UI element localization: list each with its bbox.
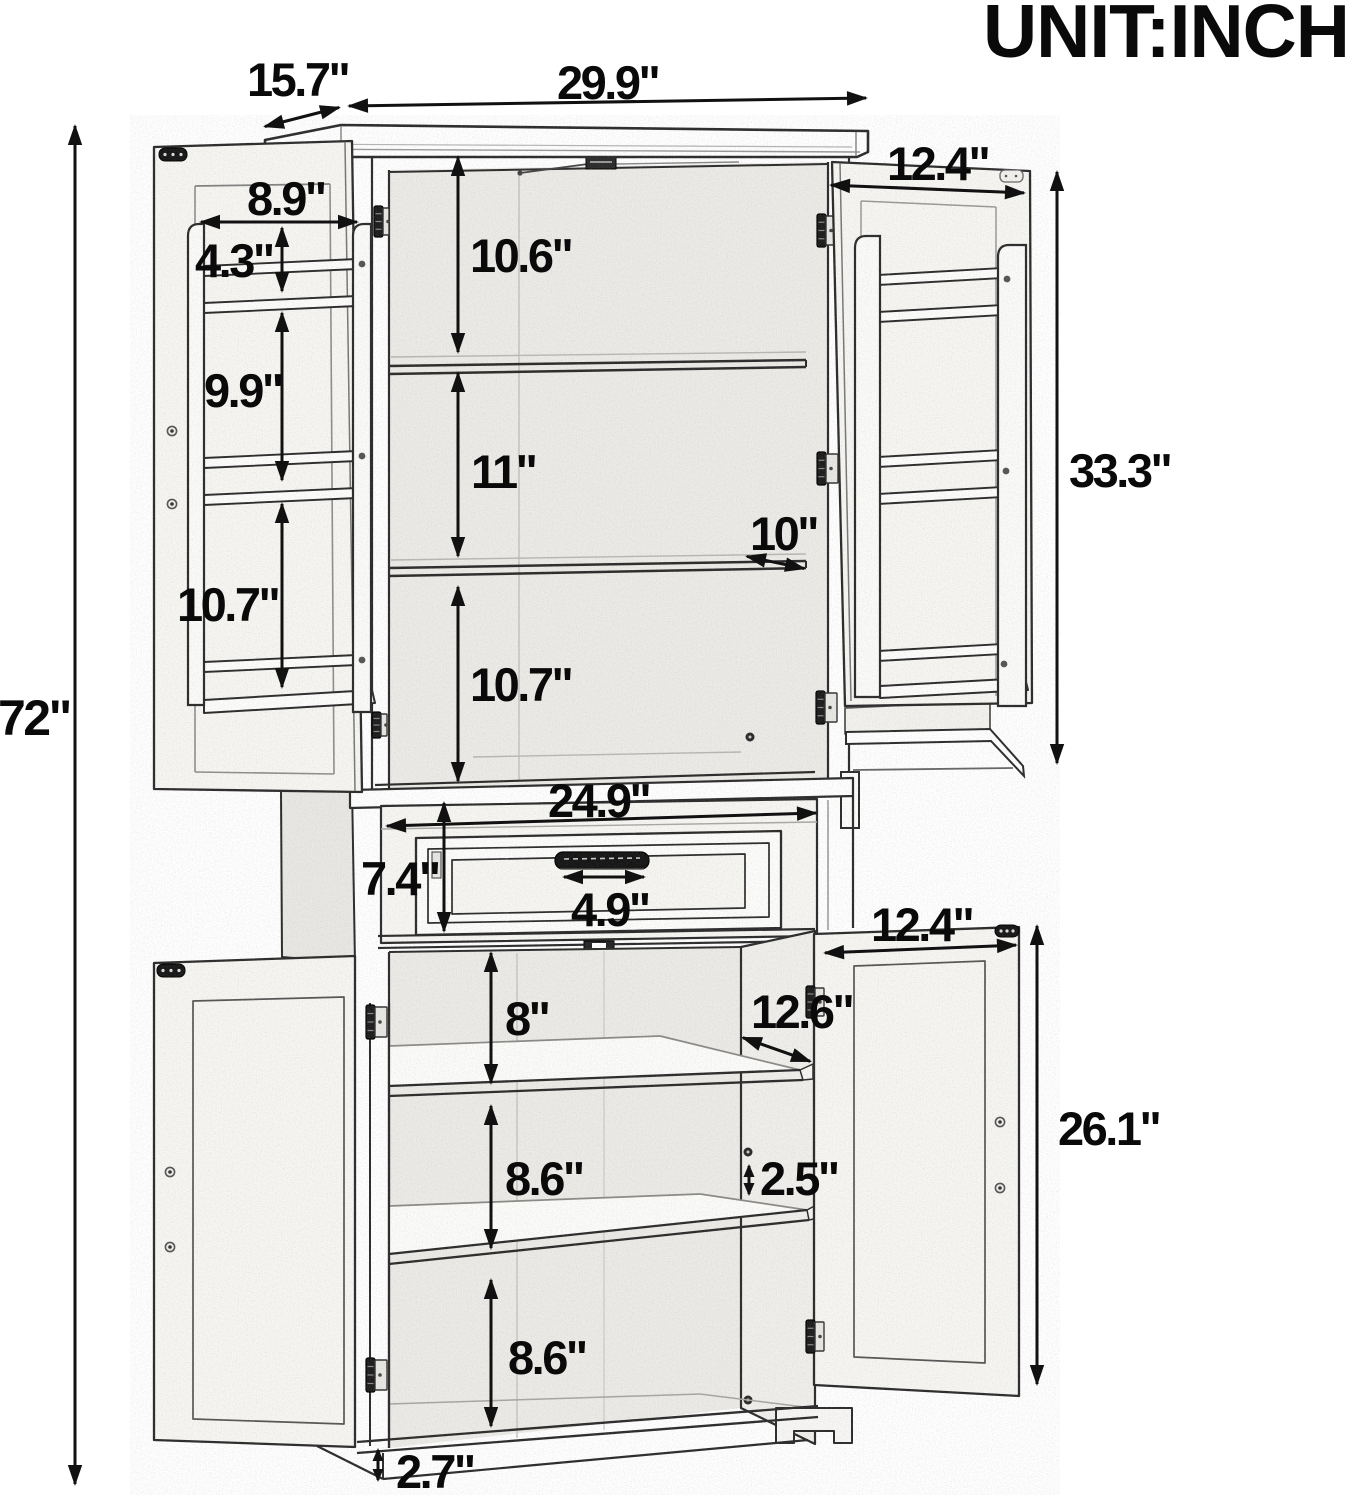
svg-text:12.4": 12.4"	[887, 137, 988, 190]
svg-text:8.9": 8.9"	[247, 172, 325, 225]
svg-text:72": 72"	[0, 690, 70, 746]
svg-text:26.1": 26.1"	[1058, 1102, 1159, 1155]
svg-text:10.7": 10.7"	[470, 658, 571, 711]
svg-text:24.9": 24.9"	[548, 774, 649, 827]
svg-text:29.9": 29.9"	[557, 56, 658, 109]
svg-text:33.3": 33.3"	[1069, 444, 1170, 497]
svg-text:4.3": 4.3"	[195, 234, 273, 287]
svg-text:UNIT:INCH: UNIT:INCH	[983, 0, 1349, 73]
svg-text:2.7": 2.7"	[396, 1445, 474, 1498]
svg-text:7.4": 7.4"	[361, 852, 439, 905]
svg-text:9.9": 9.9"	[204, 364, 282, 417]
svg-text:15.7": 15.7"	[247, 53, 348, 106]
svg-text:10": 10"	[750, 507, 817, 560]
svg-text:4.9": 4.9"	[571, 883, 649, 936]
svg-text:10.7": 10.7"	[177, 578, 278, 631]
svg-text:11": 11"	[471, 445, 536, 498]
svg-text:12.6": 12.6"	[751, 985, 852, 1038]
svg-text:8.6": 8.6"	[508, 1331, 586, 1384]
svg-text:10.6": 10.6"	[470, 229, 571, 282]
svg-text:8.6": 8.6"	[505, 1152, 583, 1205]
svg-text:2.5": 2.5"	[760, 1152, 838, 1205]
svg-text:12.4": 12.4"	[871, 898, 972, 951]
svg-text:8": 8"	[505, 992, 549, 1045]
